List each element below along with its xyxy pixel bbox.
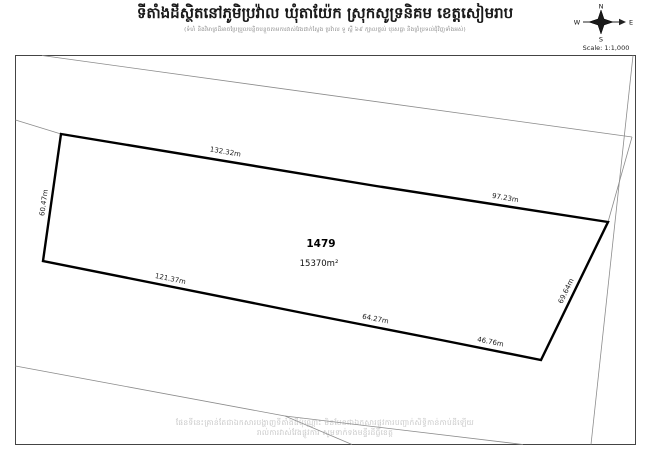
survey-map: 132.32m 97.23m 60.47m 121.37m 64.27m 46.… (0, 0, 650, 460)
parcel-area: 15370m² (300, 259, 339, 269)
watermark-line2: រាល់ការវាស់វែងផ្លូវការ សូមទាក់ទងមន្ទីរដី… (0, 428, 650, 439)
survey-document: ទីតាំងដីស្ថិតនៅភូមិប្រវ៉ាល ឃុំតាយ៉ែក ស្រ… (0, 0, 650, 460)
parcel-number: 1479 (306, 238, 335, 250)
